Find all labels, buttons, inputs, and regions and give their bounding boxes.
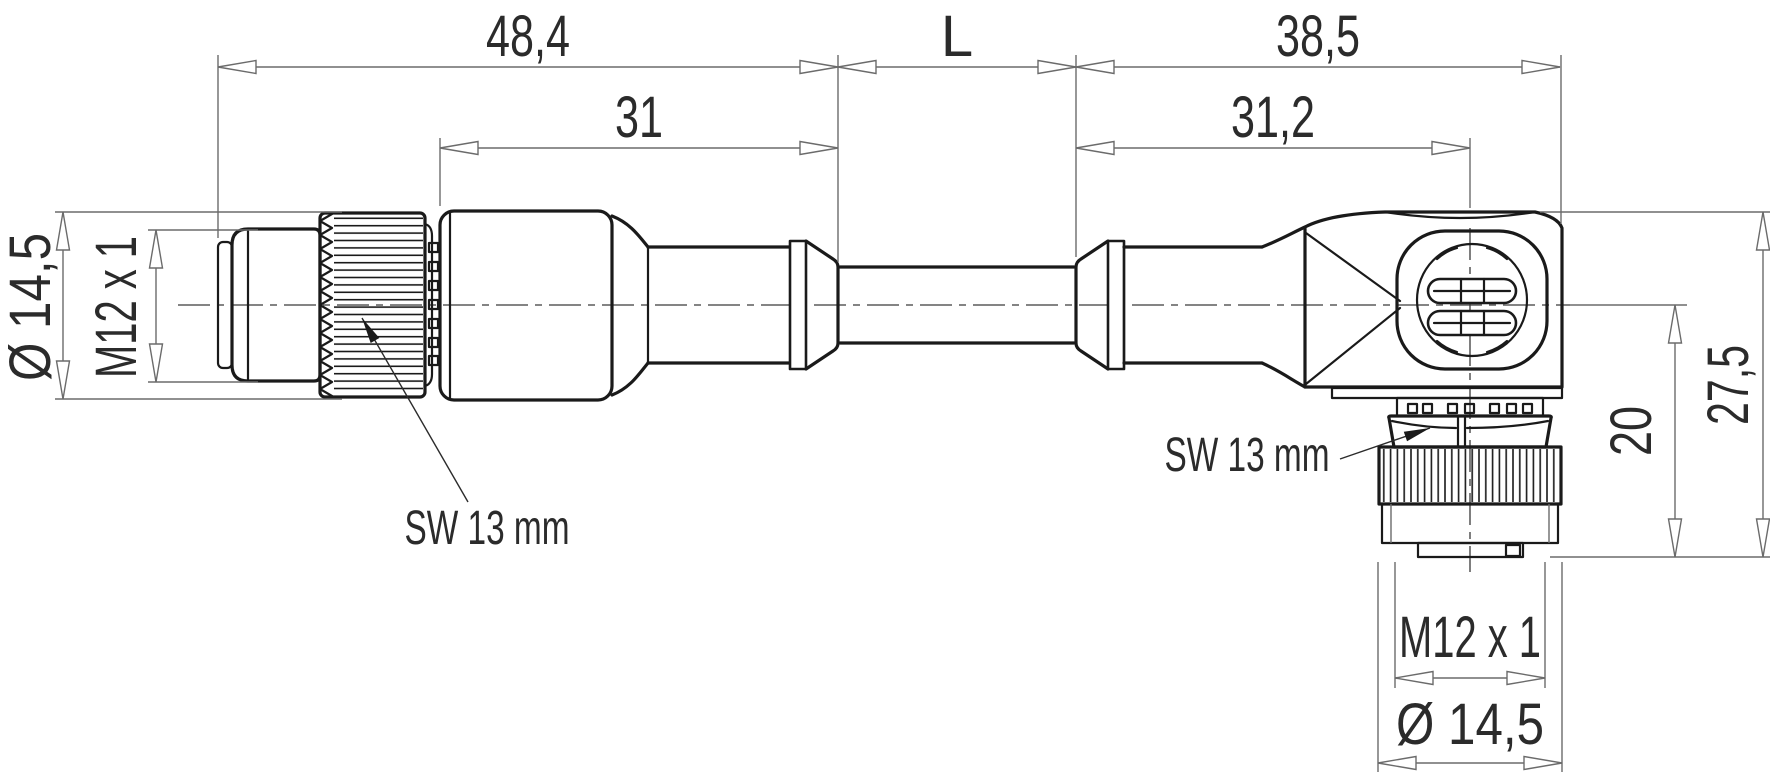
male-knurl-hatch <box>334 216 423 394</box>
female-taper <box>1262 227 1305 387</box>
dim-label-31-2: 31,2 <box>1231 85 1315 150</box>
nut-top-plate <box>1332 388 1562 398</box>
female-angled-connector <box>1076 212 1562 557</box>
wrench-label-left: SW 13 mm <box>405 502 570 555</box>
technical-drawing-canvas: 48,4 L 38,5 31 31,2 Ø 14,5 M12 x 1 SW 13… <box>0 0 1770 778</box>
dim-label-31: 31 <box>615 85 663 150</box>
nut-hex-face-arcs <box>1392 421 1548 428</box>
male-contact-pins <box>429 243 438 365</box>
dim-label-20: 20 <box>1599 406 1664 456</box>
dim-label-27-5: 27,5 <box>1696 345 1761 425</box>
dim-label-m12x1-left: M12 x 1 <box>84 236 149 378</box>
nut-bottom-key <box>1506 545 1520 556</box>
dim-label-dia-14-5-left: Ø 14,5 <box>0 233 63 381</box>
socket-grip-bars <box>1428 279 1516 335</box>
male-relief-ring <box>790 241 806 369</box>
female-relief-ring <box>1108 241 1124 369</box>
cable-connector-drawing: 48,4 L 38,5 31 31,2 Ø 14,5 M12 x 1 SW 13… <box>0 0 1770 778</box>
head-cone-diagonals <box>1306 233 1400 384</box>
dim-label-48-4: 48,4 <box>486 4 570 69</box>
dim-label-L: L <box>941 4 973 69</box>
nut-knurl-hatch <box>1382 449 1558 502</box>
dim-label-38-5: 38,5 <box>1276 4 1360 69</box>
dim-label-m12x1-bottom: M12 x 1 <box>1399 605 1541 670</box>
wrench-label-right: SW 13 mm <box>1165 429 1330 482</box>
dim-label-dia-14-5-bottom: Ø 14,5 <box>1396 692 1544 757</box>
nut-hex-edge-lines <box>1458 416 1465 447</box>
